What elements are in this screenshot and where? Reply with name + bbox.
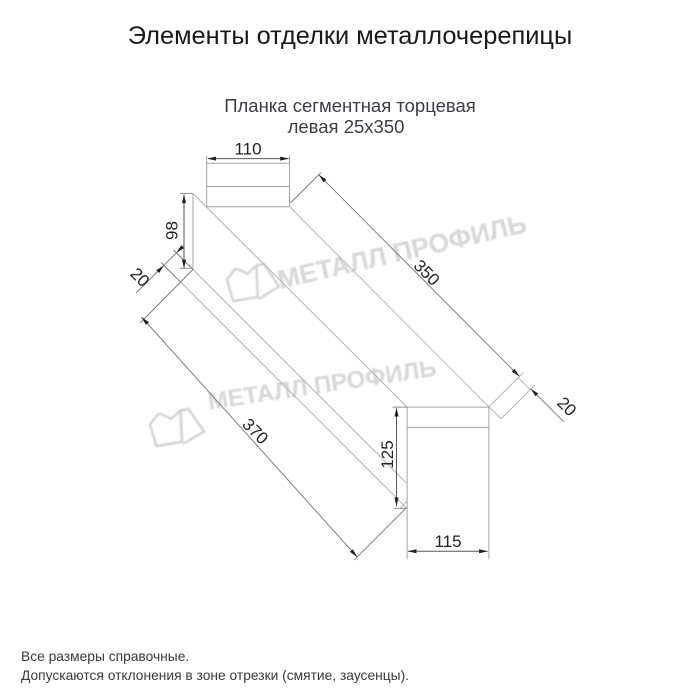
svg-text:125: 125 — [378, 440, 397, 468]
svg-text:370: 370 — [238, 415, 271, 448]
svg-text:МЕТАЛЛ ПРОФИЛЬ: МЕТАЛЛ ПРОФИЛЬ — [275, 208, 530, 294]
svg-text:МЕТАЛЛ ПРОФИЛЬ: МЕТАЛЛ ПРОФИЛЬ — [206, 355, 438, 416]
svg-text:20: 20 — [126, 264, 153, 291]
svg-text:110: 110 — [234, 140, 261, 159]
svg-text:98: 98 — [163, 221, 182, 240]
svg-text:115: 115 — [434, 532, 461, 551]
